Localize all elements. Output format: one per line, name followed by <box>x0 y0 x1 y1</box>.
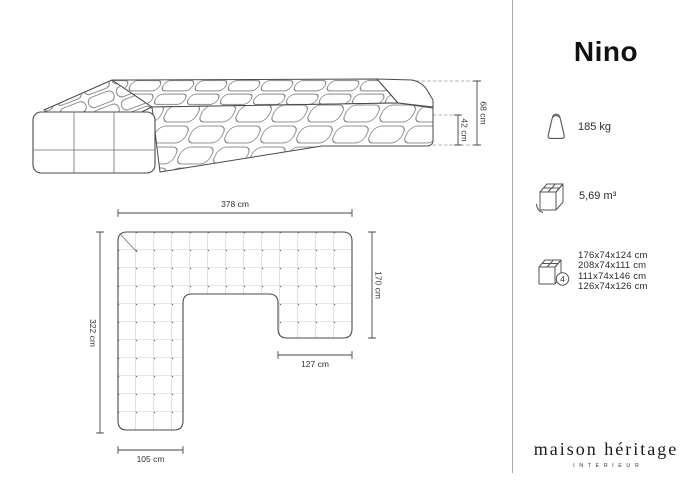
dim-total-width: 378 cm <box>118 199 352 217</box>
dim-total-height: 68 cm <box>474 81 489 145</box>
dim-left-arm-width-label: 105 cm <box>137 454 165 464</box>
weight-icon <box>543 109 569 142</box>
brand-subtitle: INTERIEUR <box>513 463 699 469</box>
dim-right-depth: 170 cm <box>369 232 384 338</box>
package-count: 4 <box>560 274 565 284</box>
weight-value: 185 kg <box>578 121 611 133</box>
dim-right-depth-label: 170 cm <box>374 271 384 299</box>
technical-drawings: 68 cm 42 cm 378 cm 322 cm <box>0 0 512 494</box>
dim-left-depth: 322 cm <box>88 232 104 433</box>
dim-left-arm-width: 105 cm <box>118 447 183 465</box>
vertical-divider <box>512 0 513 473</box>
dim-total-width-label: 378 cm <box>221 199 249 209</box>
brand-name: maison héritage <box>513 439 699 460</box>
package-dimension-item: 126x74x126 cm <box>578 282 648 292</box>
sofa-side-view-drawing: 68 cm 42 cm <box>33 79 489 173</box>
brand-logo: maison héritage INTERIEUR <box>513 439 699 469</box>
volume-value: 5,69 m³ <box>579 190 616 202</box>
dim-right-chaise-width-label: 127 cm <box>301 359 329 369</box>
dim-right-chaise-width: 127 cm <box>278 352 352 370</box>
spec-sheet: 68 cm 42 cm 378 cm 322 cm <box>0 0 700 494</box>
dim-total-height-label: 68 cm <box>479 101 489 124</box>
package-dimensions-list: 176x74x124 cm 208x74x111 cm 111x74x146 c… <box>578 251 648 292</box>
dim-seat-height-label: 42 cm <box>460 118 470 141</box>
product-title: Nino <box>513 36 699 68</box>
sofa-top-view-drawing: 378 cm 322 cm 170 cm 127 cm 105 cm <box>88 199 384 464</box>
box-volume-icon <box>532 177 574 217</box>
dim-seat-height: 42 cm <box>455 115 470 145</box>
box-packages-icon: 4 <box>535 255 573 291</box>
dim-left-depth-label: 322 cm <box>88 319 98 347</box>
